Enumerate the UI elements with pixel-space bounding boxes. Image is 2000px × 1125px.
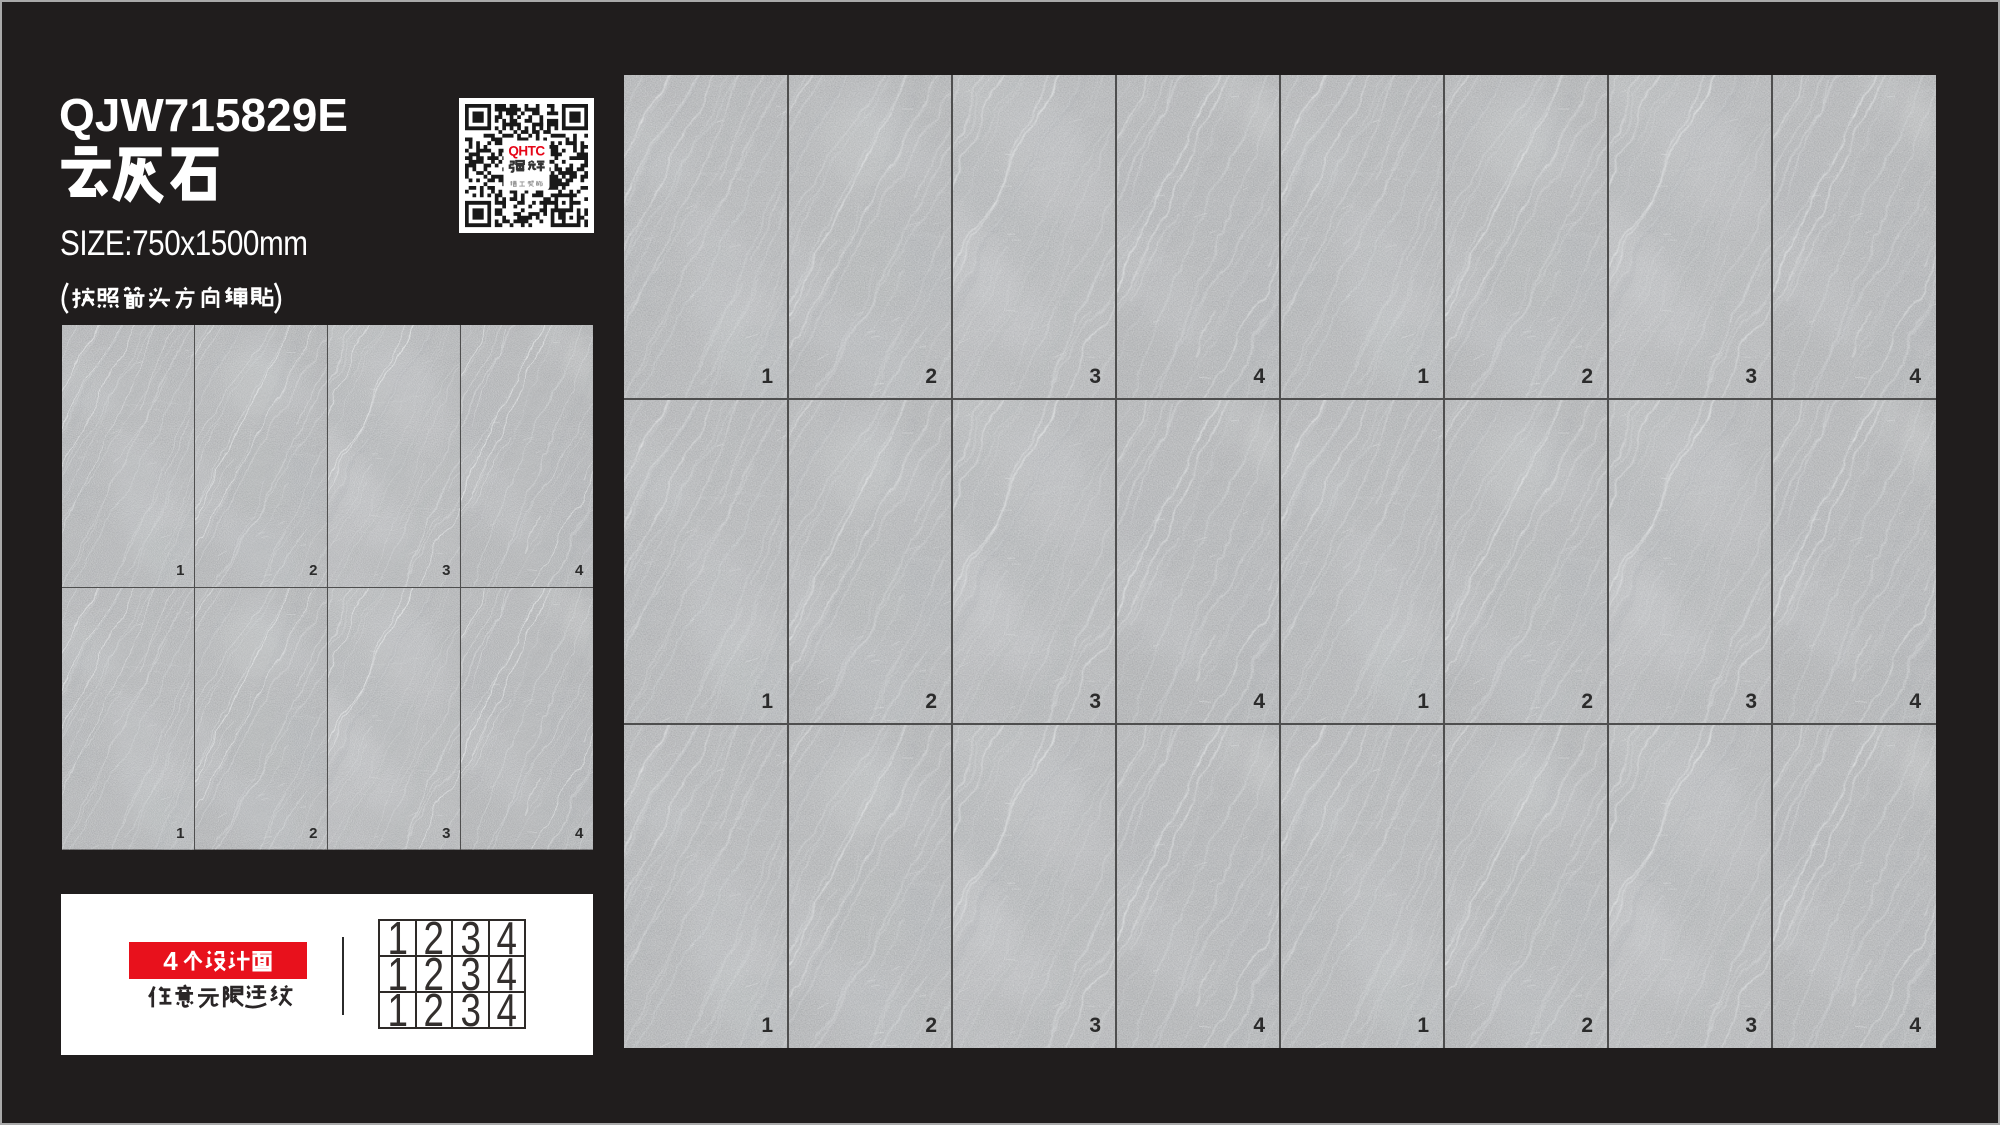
- svg-text:QHTC: QHTC: [508, 144, 545, 159]
